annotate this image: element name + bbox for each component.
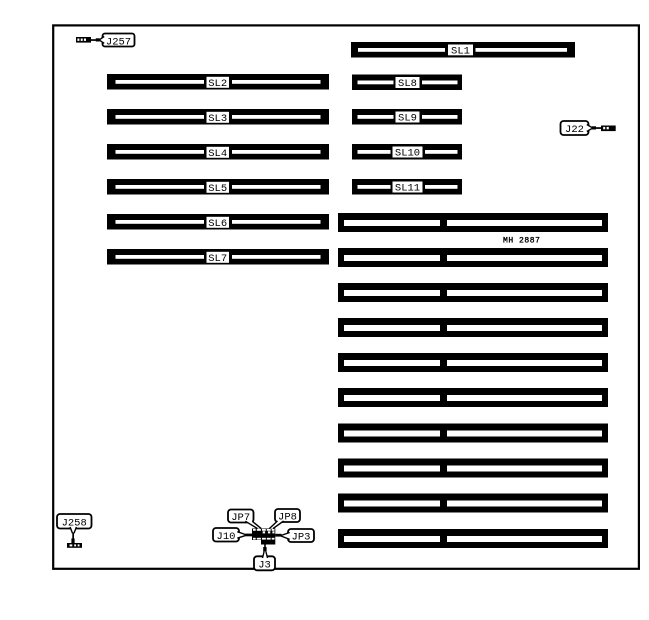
svg-text:SL7: SL7 — [208, 253, 227, 265]
svg-text:SL10: SL10 — [395, 148, 420, 160]
svg-text:MH 2887: MH 2887 — [503, 237, 540, 246]
svg-text:JP3: JP3 — [292, 532, 311, 544]
svg-text:SL8: SL8 — [398, 78, 417, 90]
svg-text:JP8: JP8 — [278, 512, 297, 524]
svg-text:SL5: SL5 — [208, 183, 227, 195]
svg-text:SL6: SL6 — [208, 218, 227, 230]
svg-text:J257: J257 — [106, 36, 131, 48]
svg-text:SL11: SL11 — [395, 183, 420, 195]
svg-text:J258: J258 — [62, 518, 87, 530]
svg-text:SL2: SL2 — [208, 78, 227, 90]
svg-text:J10: J10 — [217, 531, 236, 543]
svg-text:SL9: SL9 — [398, 113, 417, 125]
svg-text:SL1: SL1 — [451, 45, 470, 57]
svg-text:J3: J3 — [258, 560, 271, 572]
svg-text:JP7: JP7 — [231, 512, 250, 524]
svg-text:SL4: SL4 — [208, 148, 227, 160]
svg-text:SL3: SL3 — [208, 113, 227, 125]
svg-text:J22: J22 — [565, 124, 584, 136]
